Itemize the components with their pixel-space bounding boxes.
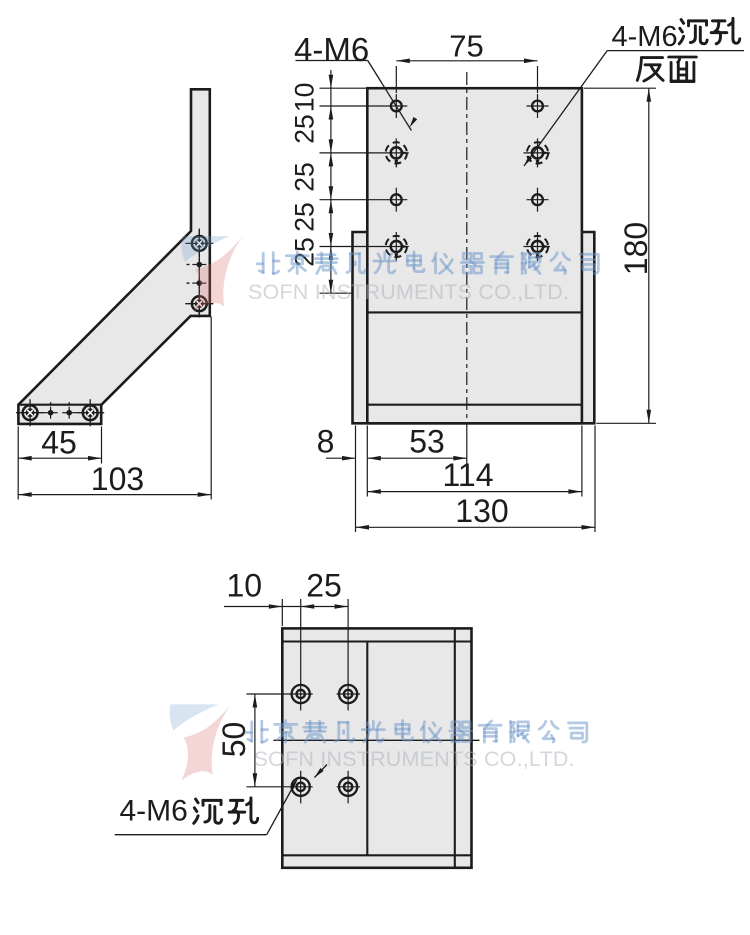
svg-text:25: 25 xyxy=(290,202,320,231)
svg-text:4-M6: 4-M6 xyxy=(120,795,188,828)
svg-text:45: 45 xyxy=(41,425,77,461)
svg-text:130: 130 xyxy=(455,493,508,529)
svg-text:8: 8 xyxy=(317,424,335,460)
svg-text:10: 10 xyxy=(290,83,320,112)
svg-text:SOFN INSTRUMENTS CO.,LTD.: SOFN INSTRUMENTS CO.,LTD. xyxy=(248,280,569,304)
svg-text:4-M6: 4-M6 xyxy=(294,31,369,68)
svg-text:SOFN INSTRUMENTS CO.,LTD.: SOFN INSTRUMENTS CO.,LTD. xyxy=(254,747,575,771)
svg-text:10: 10 xyxy=(227,568,263,604)
svg-text:25: 25 xyxy=(306,568,342,604)
svg-text:4-M6: 4-M6 xyxy=(612,21,678,53)
svg-text:25: 25 xyxy=(290,114,320,143)
svg-text:25: 25 xyxy=(290,162,320,191)
svg-text:114: 114 xyxy=(442,457,493,493)
svg-text:75: 75 xyxy=(449,29,483,64)
svg-text:53: 53 xyxy=(409,424,445,460)
svg-text:103: 103 xyxy=(91,461,144,497)
svg-text:180: 180 xyxy=(618,222,654,275)
